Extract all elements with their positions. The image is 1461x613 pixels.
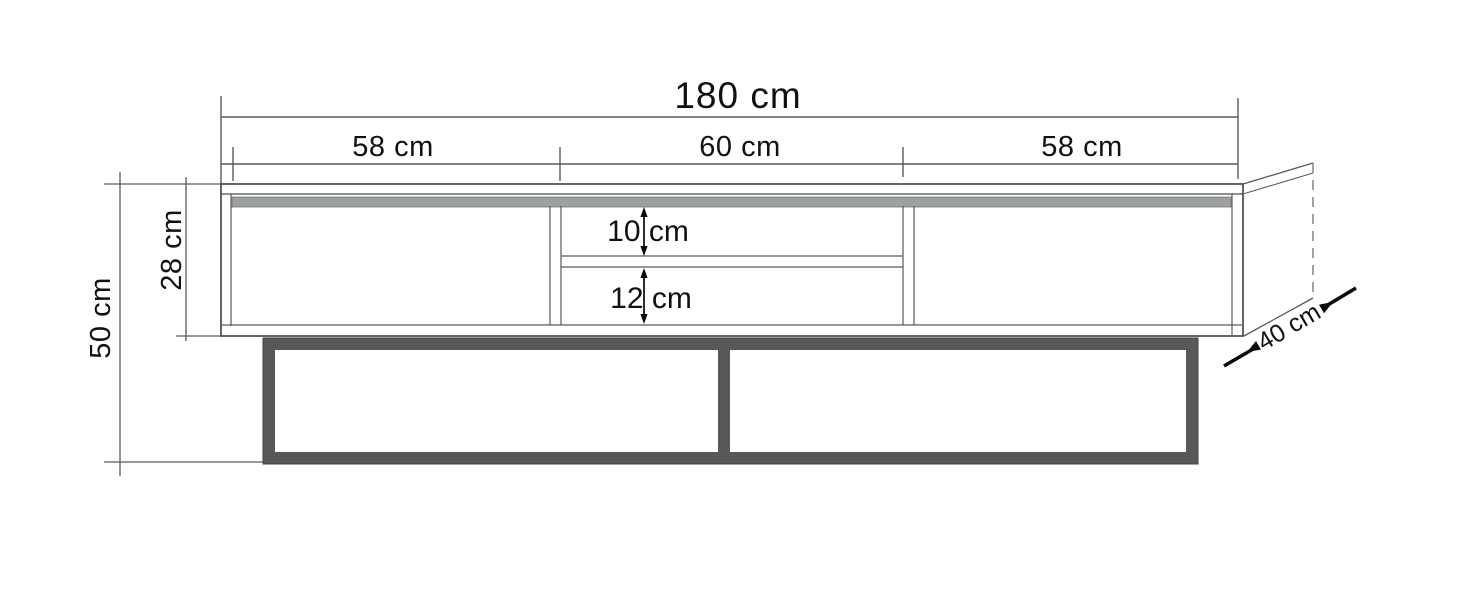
dim-label-opening-top: 10 cm <box>607 215 689 248</box>
base-frame-opening-left <box>275 350 718 452</box>
dim-label-total-width: 180 cm <box>674 75 801 116</box>
depth-arrowhead-upper <box>1319 302 1333 313</box>
base-frame <box>263 338 1198 464</box>
dim-label-section-middle: 60 cm <box>699 131 780 163</box>
dim-label-opening-bottom: 12 cm <box>610 282 692 315</box>
dim-label-cabinet-height: 28 cm <box>156 209 188 290</box>
top-recess-strip <box>232 197 1231 207</box>
dim-label-section-left: 58 cm <box>352 131 433 163</box>
dim-label-depth: 40 cm <box>1253 298 1326 357</box>
top-edge-perspective <box>1243 163 1313 184</box>
cabinet-body <box>221 184 1243 336</box>
dim-label-section-right: 58 cm <box>1041 131 1122 163</box>
dim-label-total-height: 50 cm <box>85 277 117 358</box>
base-frame-opening-right <box>730 350 1186 452</box>
tv-stand-dimension-drawing: 180 cm 58 cm 60 cm 58 cm 50 cm 28 cm <box>0 0 1461 613</box>
side-panel-top-edge <box>1243 173 1313 194</box>
diagram-canvas: 180 cm 58 cm 60 cm 58 cm 50 cm 28 cm <box>0 0 1461 613</box>
